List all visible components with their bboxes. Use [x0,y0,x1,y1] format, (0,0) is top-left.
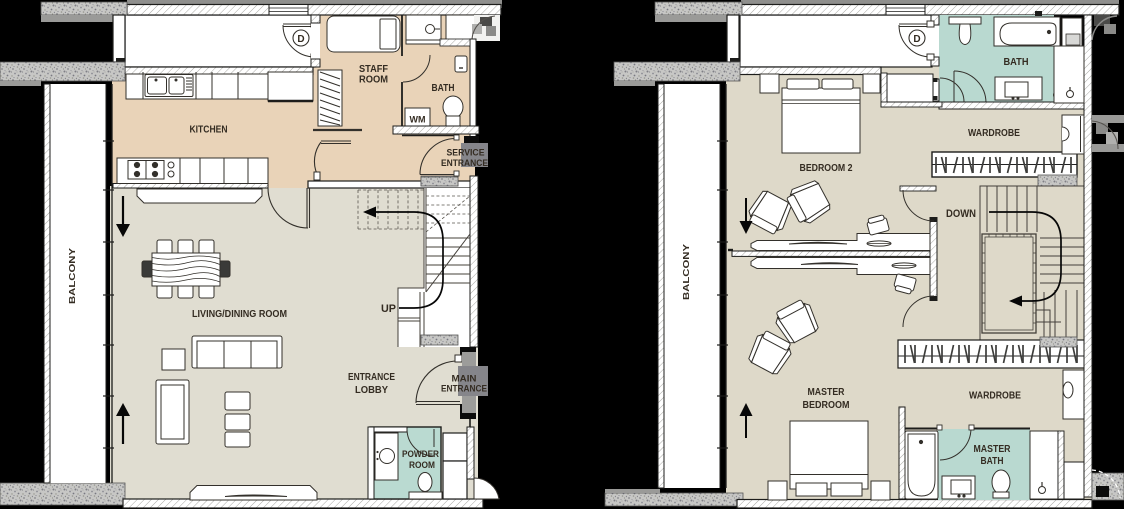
svg-text:ROOM: ROOM [409,460,435,470]
svg-text:BALCONY: BALCONY [67,248,77,304]
svg-text:MAIN: MAIN [452,374,477,384]
svg-text:LOBBY: LOBBY [355,385,388,396]
svg-text:BATH: BATH [981,456,1004,467]
svg-text:DOWN: DOWN [946,208,976,220]
svg-text:D: D [913,34,920,45]
svg-text:UP: UP [381,303,396,315]
svg-text:ROOM: ROOM [359,75,388,86]
svg-text:WARDROBE: WARDROBE [969,391,1021,402]
svg-text:ENTRANCE: ENTRANCE [348,372,395,383]
svg-text:KITCHEN: KITCHEN [190,125,228,136]
svg-text:BEDROOM 2: BEDROOM 2 [800,163,853,174]
svg-text:POWDER: POWDER [402,449,440,459]
svg-text:ENTRANCE: ENTRANCE [441,158,488,168]
svg-text:MASTER: MASTER [808,387,846,398]
svg-text:D: D [297,34,304,45]
svg-text:BALCONY: BALCONY [681,244,691,300]
svg-text:STAFF: STAFF [359,64,388,75]
svg-text:SERVICE: SERVICE [447,148,485,158]
svg-text:ENTRANCE: ENTRANCE [441,384,487,394]
svg-text:MASTER: MASTER [974,444,1012,455]
svg-text:BATH: BATH [432,83,455,94]
svg-text:LIVING/DINING ROOM: LIVING/DINING ROOM [192,309,287,320]
svg-text:WARDROBE: WARDROBE [968,128,1020,139]
svg-text:BEDROOM: BEDROOM [803,400,850,411]
svg-text:BATH: BATH [1004,57,1029,68]
svg-text:WM: WM [410,115,426,125]
